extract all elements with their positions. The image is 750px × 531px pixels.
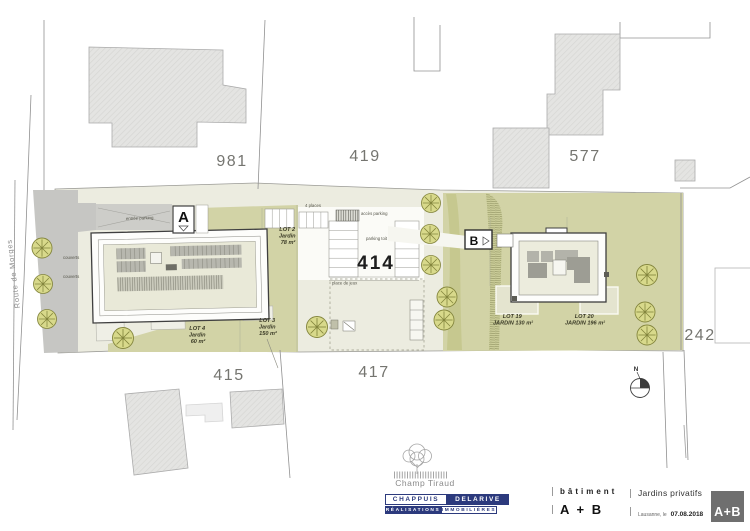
entrance-b-label: B xyxy=(470,234,479,248)
entree-parking-label: entrée parking xyxy=(126,215,154,221)
compass-quadrant xyxy=(640,379,650,389)
tree-logo-icon xyxy=(403,444,432,474)
divider-bar xyxy=(630,489,631,498)
divider-bar xyxy=(630,507,631,516)
titleblock-divider xyxy=(684,425,686,458)
company-realisations: RÉALISATIONS xyxy=(385,506,441,514)
north-label: N xyxy=(634,366,639,373)
existing-building-577a xyxy=(547,34,620,135)
north-compass: N xyxy=(631,366,650,398)
entrance-a-label: A xyxy=(178,209,189,226)
lot4-label: LOT 4 Jardin 60 m² xyxy=(189,326,207,345)
skylight xyxy=(150,252,161,263)
existing-building-415b xyxy=(230,389,284,428)
building-b xyxy=(496,228,618,314)
bench-icon xyxy=(331,320,338,329)
existing-building-577b xyxy=(493,128,549,188)
places-label: 4 places xyxy=(305,203,321,208)
ab-badge: A+B xyxy=(711,491,744,522)
sheet-date: 07.08.2018 xyxy=(671,511,704,518)
parcel-415-label: 415 xyxy=(213,367,244,384)
entrance-a: A xyxy=(173,205,208,233)
couverts-label-1: couverts xyxy=(63,255,79,260)
roof-vent xyxy=(166,264,177,270)
parcel-417-label: 417 xyxy=(358,364,389,381)
existing-building-415a xyxy=(125,389,188,475)
ab-badge-text: A+B xyxy=(714,506,741,523)
project-name: Champ Tiraud xyxy=(390,478,460,488)
skylight xyxy=(553,260,566,275)
road-label: Route de Morges xyxy=(5,239,22,309)
solar-panels xyxy=(116,248,145,260)
lot2-label: LOT 2 Jardin 78 m² xyxy=(279,227,297,246)
parking-toit-label: parking toit xyxy=(366,236,388,241)
company-delarive: DELARIVE xyxy=(447,494,509,505)
covered-parking-hatch xyxy=(336,210,359,221)
parcel-577-label: 577 xyxy=(569,148,600,165)
sheet-title: Jardins privatifs xyxy=(638,488,702,498)
place-de-jeux-label: place de jeux xyxy=(332,281,358,286)
site-plan: A B xyxy=(0,0,750,531)
couverts-label-2: couverts xyxy=(63,274,79,279)
company-chappuis: CHAPPUIS xyxy=(385,494,447,505)
lot3-label: LOT 3 Jardin 150 m² xyxy=(259,318,277,337)
parcel-242-label: 242 xyxy=(684,327,715,344)
existing-building-east xyxy=(675,160,695,181)
batiment-block: bâtiment A + B xyxy=(552,487,617,517)
batiment-value: A + B xyxy=(560,502,603,517)
parcel-414-label: 414 xyxy=(357,253,395,274)
parcel-981-label: 981 xyxy=(216,153,247,170)
roof-hatch-strip xyxy=(117,275,223,291)
acces-parking-label: accès parking xyxy=(361,211,388,216)
plan-drawing: A B xyxy=(0,0,750,531)
company-immobilieres: IMMOBILIÈRES xyxy=(441,506,497,514)
divider-bar xyxy=(552,487,553,496)
champ-tiraud-logo xyxy=(394,444,448,475)
sheet-place: Lausanne, le xyxy=(638,512,667,518)
existing-building-415c xyxy=(186,403,223,422)
batiment-label: bâtiment xyxy=(560,487,617,496)
sheet-block: Jardins privatifs Lausanne, le 07.08.201… xyxy=(630,488,703,518)
parcel-419-label: 419 xyxy=(349,148,380,165)
company-logo: CHAPPUIS DELARIVE RÉALISATIONS IMMOBILIÈ… xyxy=(385,494,509,514)
divider-bar xyxy=(552,505,553,514)
existing-building-981 xyxy=(89,47,246,147)
roof-block xyxy=(528,263,547,278)
